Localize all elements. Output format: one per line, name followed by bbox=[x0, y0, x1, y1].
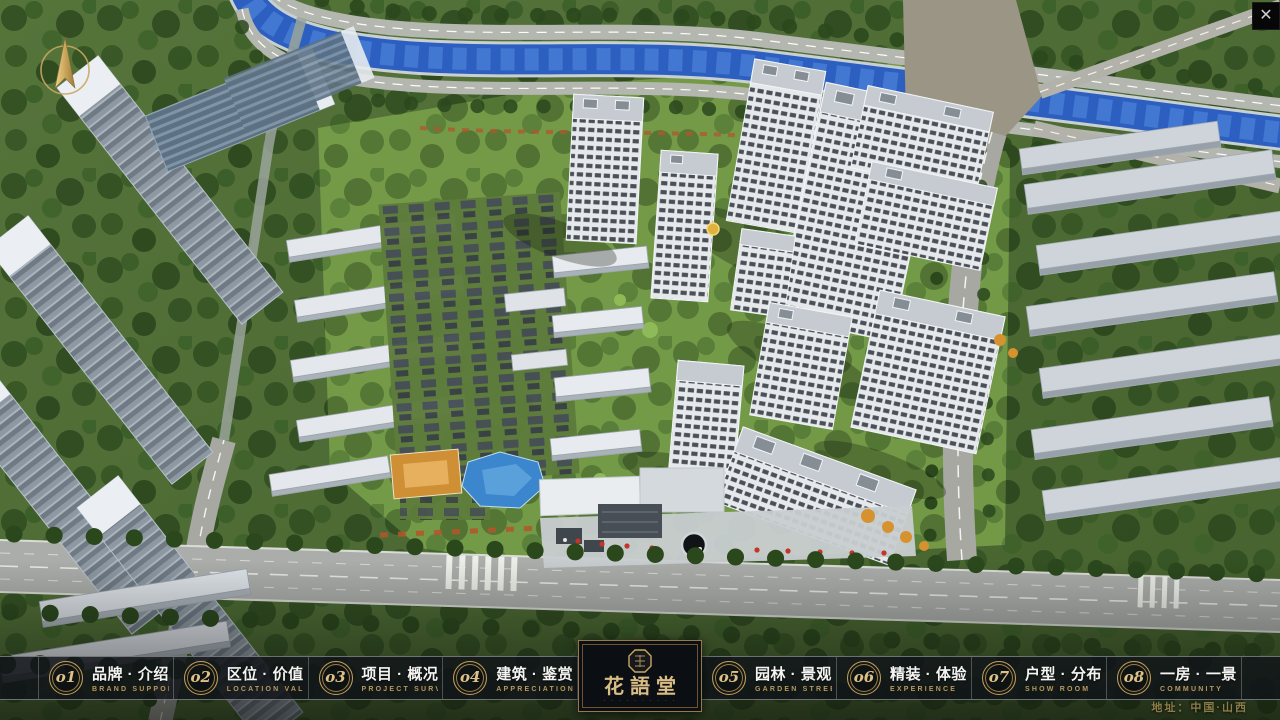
nav-item-room-view[interactable]: o8 一房 · 一景 COMMUNITY bbox=[1107, 657, 1242, 699]
nav-item-subtitle: LOCATION VALUE bbox=[227, 686, 304, 693]
clubhouse bbox=[390, 449, 462, 499]
nav-item-architecture[interactable]: o4 建筑 · 鉴赏 APPRECIATION bbox=[442, 657, 578, 699]
app-window: ✕ o1 品牌 · 介绍 BRAND SUPPORT o2 区位 · 价值 LO… bbox=[0, 0, 1280, 720]
nav-item-interior[interactable]: o6 精装 · 体验 EXPERIENCE bbox=[837, 657, 972, 699]
nav-item-location[interactable]: o2 区位 · 价值 LOCATION VALUE bbox=[173, 657, 308, 699]
nav-item-subtitle: GARDEN STREET bbox=[755, 686, 832, 693]
address-text: 地址：中国·山西 bbox=[1151, 699, 1248, 715]
nav-item-title: 户型 · 分布 bbox=[1025, 663, 1102, 684]
nav-item-subtitle: SHOW ROOM bbox=[1025, 686, 1102, 693]
project-logo-title: 花語堂 bbox=[598, 675, 682, 697]
nav-item-number-badge: o8 bbox=[1117, 661, 1151, 695]
nav-item-number-badge: o7 bbox=[982, 661, 1016, 695]
nav-item-title: 一房 · 一景 bbox=[1160, 663, 1237, 684]
nav-item-title: 建筑 · 鉴赏 bbox=[496, 663, 573, 684]
close-icon: ✕ bbox=[1259, 8, 1272, 24]
nav-item-project[interactable]: o3 项目 · 概况 PROJECT SURVEY bbox=[308, 657, 443, 699]
nav-item-subtitle: BRAND SUPPORT bbox=[92, 686, 169, 693]
nav-item-number-badge: o4 bbox=[453, 661, 487, 695]
nav-item-landscape[interactable]: o5 园林 · 景观 GARDEN STREET bbox=[702, 657, 837, 699]
nav-item-brand[interactable]: o1 品牌 · 介绍 BRAND SUPPORT bbox=[38, 657, 173, 699]
close-button[interactable]: ✕ bbox=[1252, 2, 1280, 30]
nav-item-number-badge: o1 bbox=[49, 661, 83, 695]
nav-left-group: o1 品牌 · 介绍 BRAND SUPPORT o2 区位 · 价值 LOCA… bbox=[0, 657, 578, 699]
nav-item-title: 品牌 · 介绍 bbox=[92, 663, 169, 684]
nav-item-title: 区位 · 价值 bbox=[227, 663, 304, 684]
nav-item-number-badge: o6 bbox=[847, 661, 881, 695]
nav-item-subtitle: COMMUNITY bbox=[1160, 686, 1237, 693]
nav-item-subtitle: PROJECT SURVEY bbox=[362, 686, 439, 693]
nav-right-group: o5 园林 · 景观 GARDEN STREET o6 精装 · 体验 EXPE… bbox=[702, 657, 1280, 699]
nav-item-number-badge: o5 bbox=[712, 661, 746, 695]
logo-panel[interactable]: 花語堂 · · · · · · · · · · bbox=[578, 640, 702, 712]
project-logo-tagline: · · · · · · · · · · bbox=[604, 698, 677, 704]
nav-item-title: 园林 · 景观 bbox=[755, 663, 832, 684]
nav-item-number-badge: o2 bbox=[184, 661, 218, 695]
seal-icon bbox=[627, 648, 653, 674]
nav-item-number-badge: o3 bbox=[319, 661, 353, 695]
nav-item-floorplan[interactable]: o7 户型 · 分布 SHOW ROOM bbox=[972, 657, 1107, 699]
nav-item-subtitle: APPRECIATION bbox=[496, 686, 573, 693]
nav-item-subtitle: EXPERIENCE bbox=[890, 686, 967, 693]
compass-icon bbox=[36, 34, 94, 100]
nav-item-title: 项目 · 概况 bbox=[362, 663, 439, 684]
masterplan-render[interactable] bbox=[0, 0, 1280, 720]
nav-item-title: 精装 · 体验 bbox=[890, 663, 967, 684]
